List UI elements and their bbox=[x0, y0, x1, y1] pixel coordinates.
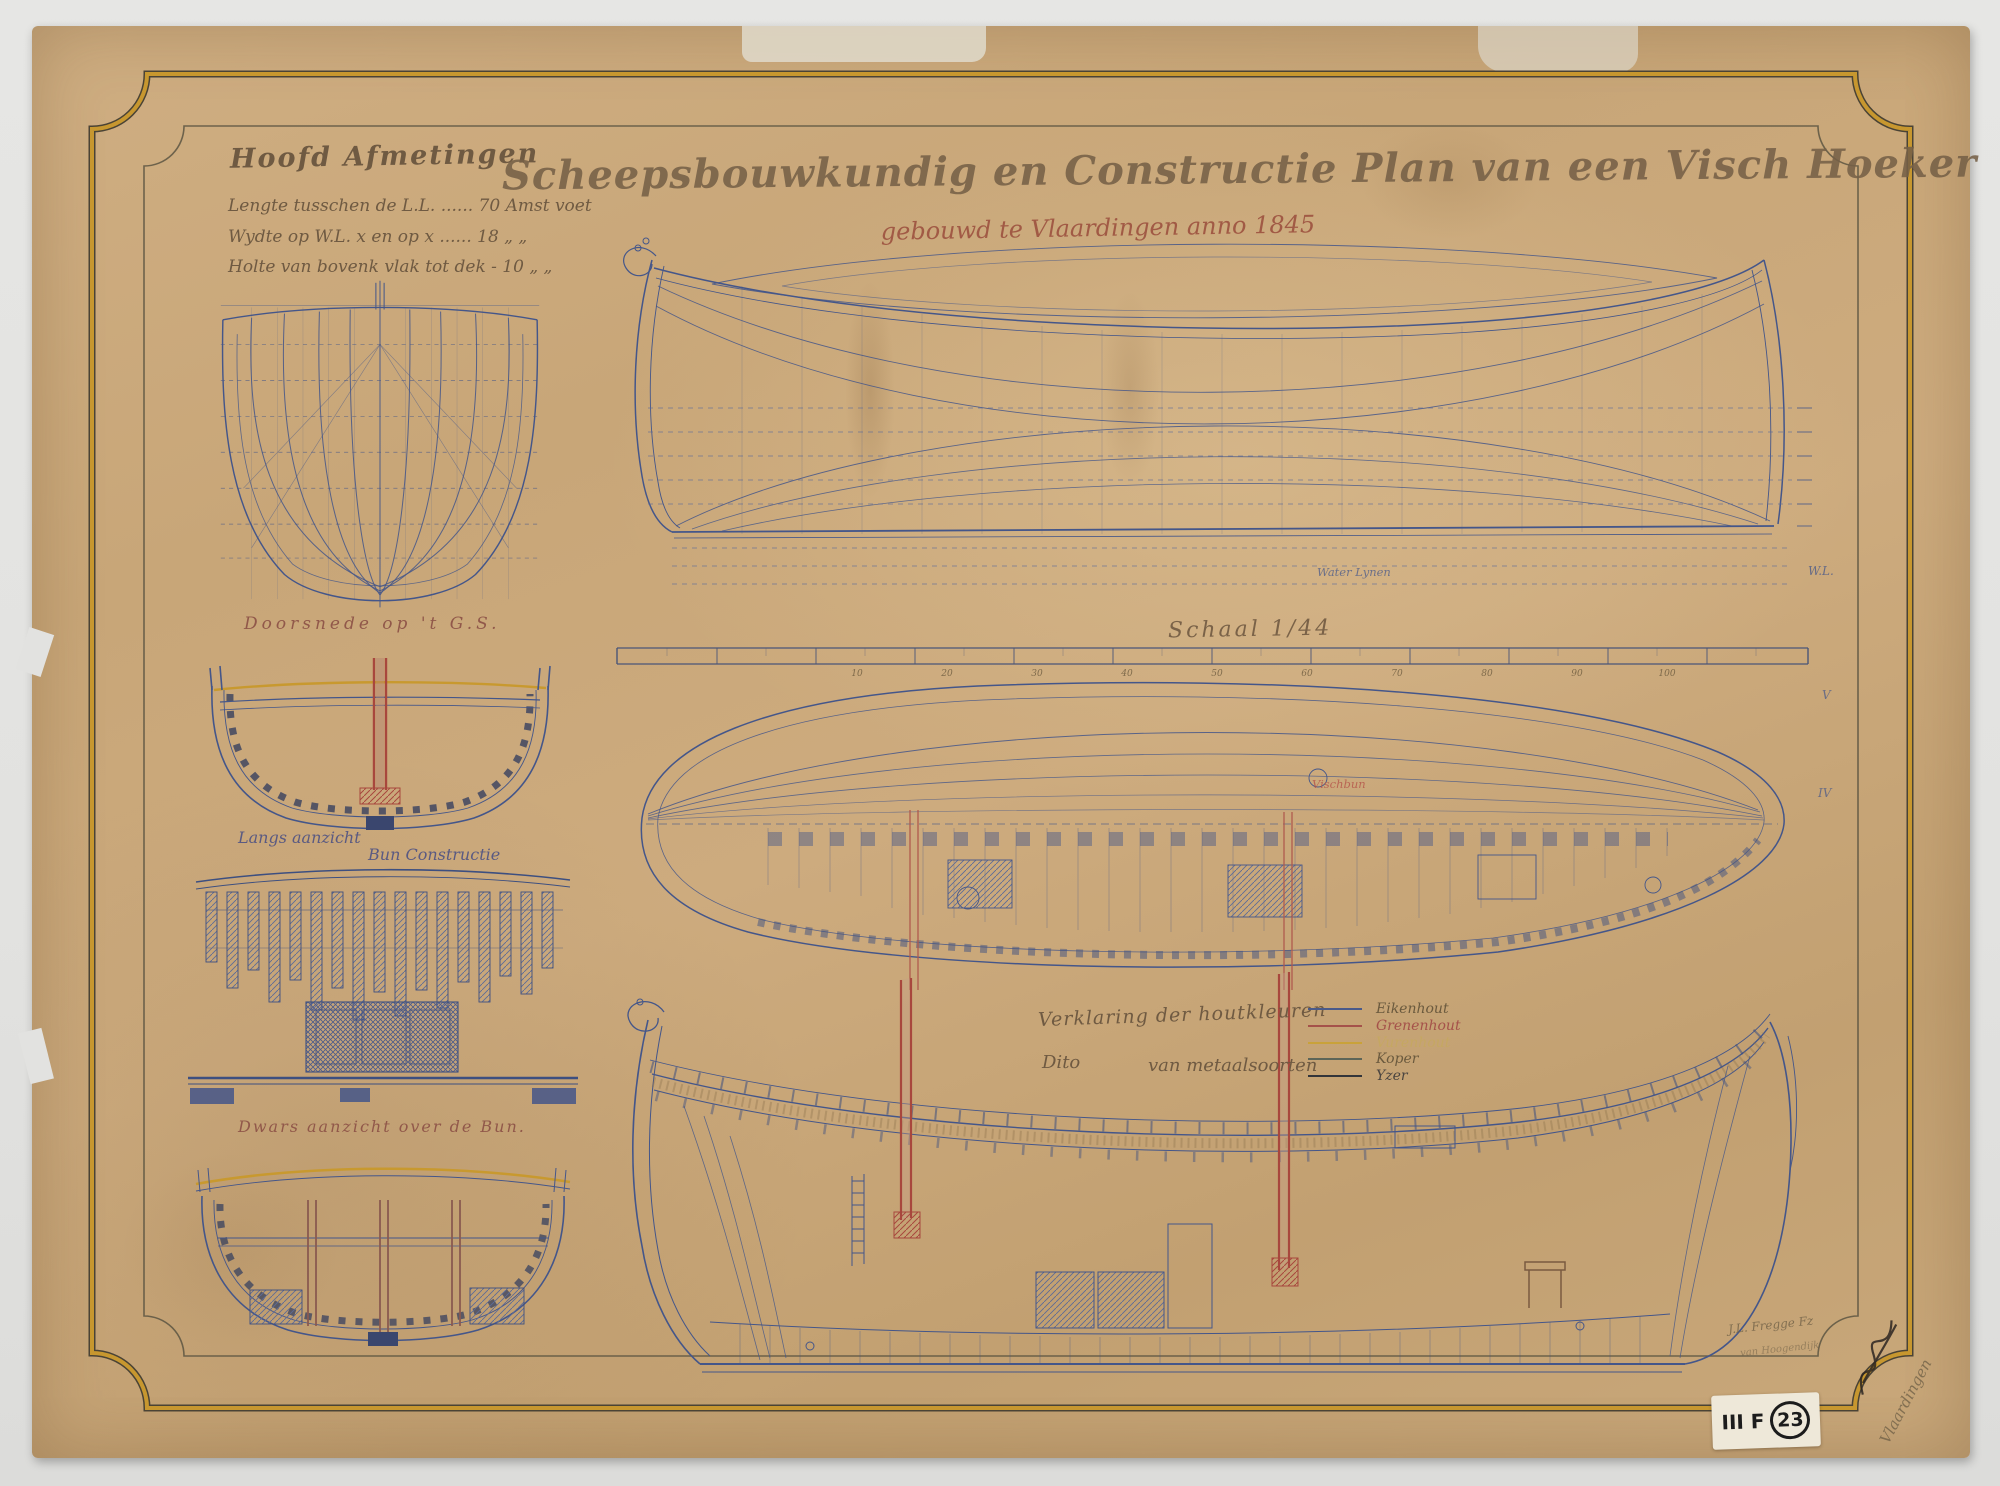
table-detail bbox=[1525, 1262, 1565, 1308]
archive-stamp-label: III F 23 bbox=[1711, 1392, 1821, 1450]
legend-label: Grenenhout bbox=[1376, 1018, 1461, 1034]
legend-swatches: Eikenhout Grenenhout Vurenhout Koper Yze… bbox=[1300, 995, 1475, 1095]
body-plan-drawing bbox=[190, 272, 570, 612]
legend-label: Yzer bbox=[1376, 1068, 1409, 1084]
legend-label: Vurenhout bbox=[1376, 1035, 1451, 1051]
doorsnede-label: Doorsnede op 't G.S. bbox=[244, 614, 501, 634]
doorsnede-drawing bbox=[190, 640, 570, 840]
dimension-line: Wydte op W.L. x en op x ...... 18 „ „ bbox=[228, 227, 527, 247]
bun-construction-drawing bbox=[188, 852, 578, 1107]
legend-label: Koper bbox=[1375, 1051, 1420, 1067]
legend-title-metal-left: Dito bbox=[1042, 1052, 1080, 1073]
legend-label: Eikenhout bbox=[1375, 1001, 1449, 1017]
dwars-aanzicht-label: Dwars aanzicht over de Bun. bbox=[238, 1117, 526, 1136]
half-breadth-plan-drawing: Vischbun bbox=[618, 660, 1810, 990]
stamp-prefix: III F bbox=[1721, 1409, 1765, 1434]
right-margin-mark: V bbox=[1822, 688, 1831, 702]
right-margin-mark: IV bbox=[1818, 786, 1831, 800]
dwars-aanzicht-drawing bbox=[188, 1140, 578, 1380]
dimensions-heading: Hoofd Afmetingen bbox=[230, 138, 540, 174]
legend-title-metal-right: van metaalsoorten bbox=[1148, 1055, 1317, 1076]
water-lines-label: Water Lynen bbox=[1317, 565, 1391, 579]
construction-section-drawing bbox=[600, 966, 1815, 1390]
vischbun-label: Vischbun bbox=[1312, 777, 1366, 791]
waterline-mark: W.L. bbox=[1808, 564, 1834, 578]
stamp-number: 23 bbox=[1770, 1400, 1811, 1439]
sheer-plan-drawing: Water Lynen bbox=[612, 226, 1817, 641]
langs-aanzicht-label: Langs aanzicht bbox=[238, 828, 361, 847]
schaal-label: Schaal 1/44 bbox=[1168, 616, 1333, 644]
